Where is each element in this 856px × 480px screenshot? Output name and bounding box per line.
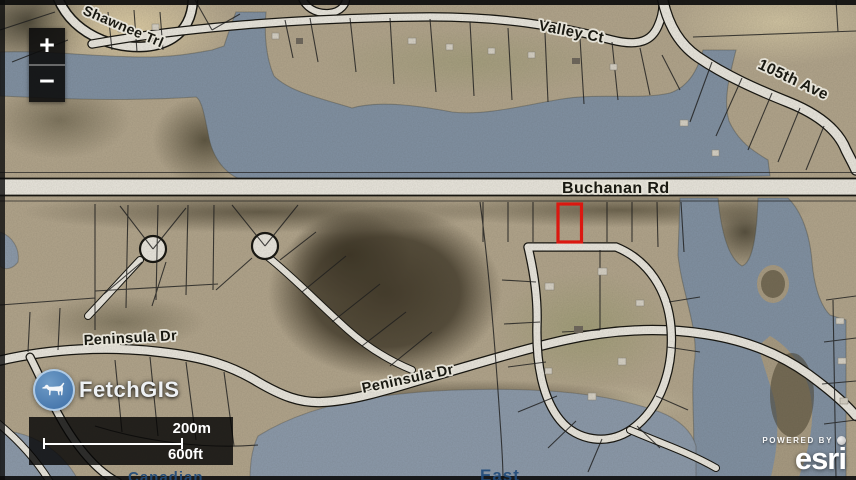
- road-label-peninsula-dr-west: Peninsula Dr: [83, 328, 177, 349]
- esri-wordmark: esri: [762, 446, 846, 472]
- zoom-control: + −: [29, 28, 65, 102]
- scale-bar: 200m 600ft: [29, 417, 233, 465]
- map-viewport[interactable]: Shawnee Trl Valley Ct 105th Ave Buchanan…: [0, 0, 856, 480]
- selected-parcel-highlight[interactable]: [558, 204, 582, 242]
- island: [757, 265, 789, 303]
- scale-imperial-label: 600ft: [168, 446, 203, 463]
- zoom-out-button[interactable]: −: [29, 64, 65, 102]
- dog-icon: [41, 380, 67, 400]
- fetchgis-badge: [33, 369, 75, 411]
- road-label-valley-ct: Valley Ct: [537, 17, 605, 46]
- water-label-canadian: Canadian: [128, 469, 204, 480]
- scale-metric-label: 200m: [173, 420, 211, 437]
- road-label-buchanan-rd: Buchanan Rd: [562, 180, 670, 197]
- fetchgis-wordmark: FetchGIS: [79, 377, 180, 403]
- zoom-in-button[interactable]: +: [29, 28, 65, 64]
- esri-attribution: POWERED BY esri: [762, 436, 846, 472]
- fetchgis-logo[interactable]: FetchGIS: [33, 369, 180, 411]
- water-label-east: East: [480, 466, 520, 480]
- powered-by-label: POWERED BY: [762, 436, 833, 445]
- scale-bar-line: [43, 443, 183, 445]
